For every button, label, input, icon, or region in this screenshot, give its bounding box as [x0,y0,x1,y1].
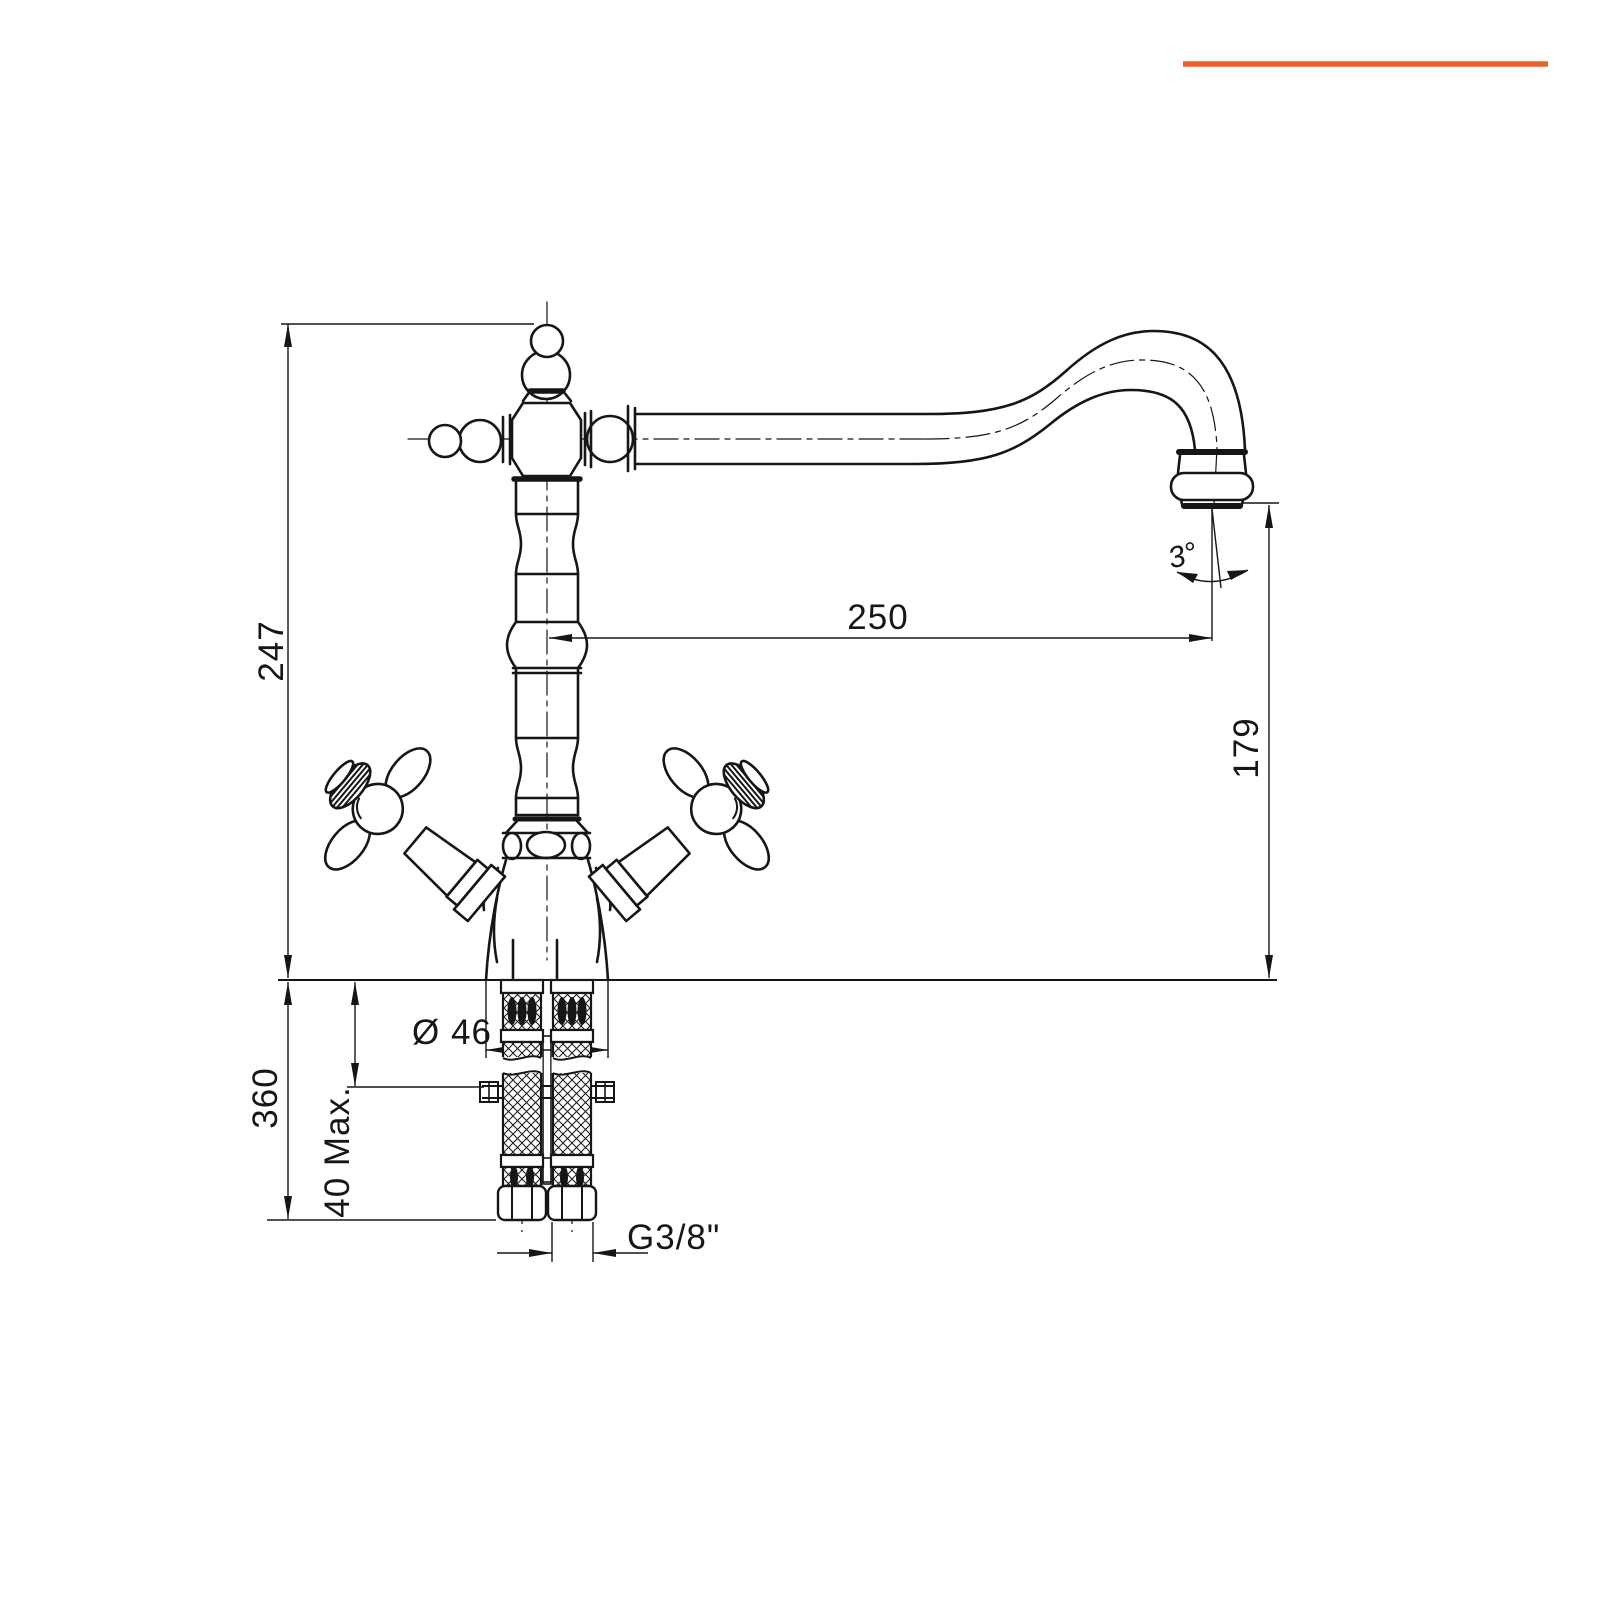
supply-hose-right [548,980,596,1232]
outlet-angle-label: 3° [1165,536,1201,575]
left-handle [286,715,535,958]
outlet-height-label: 179 [1227,717,1266,778]
left-ball-ornament [429,415,510,464]
right-handle [559,715,808,958]
faucet-outline [286,302,1253,980]
dim-spout-reach: 250 [549,598,1212,642]
dim-supply-thread: G3/8" [497,1218,720,1262]
hose-length-label: 360 [246,1067,285,1128]
supply-hose-left [498,980,546,1232]
centerlines [408,302,1217,960]
dim-outlet-angle: 3° [1165,509,1248,641]
spout [635,331,1245,464]
spout-reach-label: 250 [847,598,908,637]
supply-thread-label: G3/8" [627,1218,720,1257]
faucet-technical-drawing-page: Ø 46 247 360 [0,0,1600,1600]
technical-drawing-svg: Ø 46 247 360 [0,0,1600,1600]
base-diameter-label: Ø 46 [412,1013,492,1052]
spout-ball-joint [585,406,635,471]
overall-height-label: 247 [252,620,291,681]
spout-aerator [1171,452,1253,506]
deck-thickness-label: 40 Max. [318,1086,357,1218]
valve-body [512,403,581,479]
